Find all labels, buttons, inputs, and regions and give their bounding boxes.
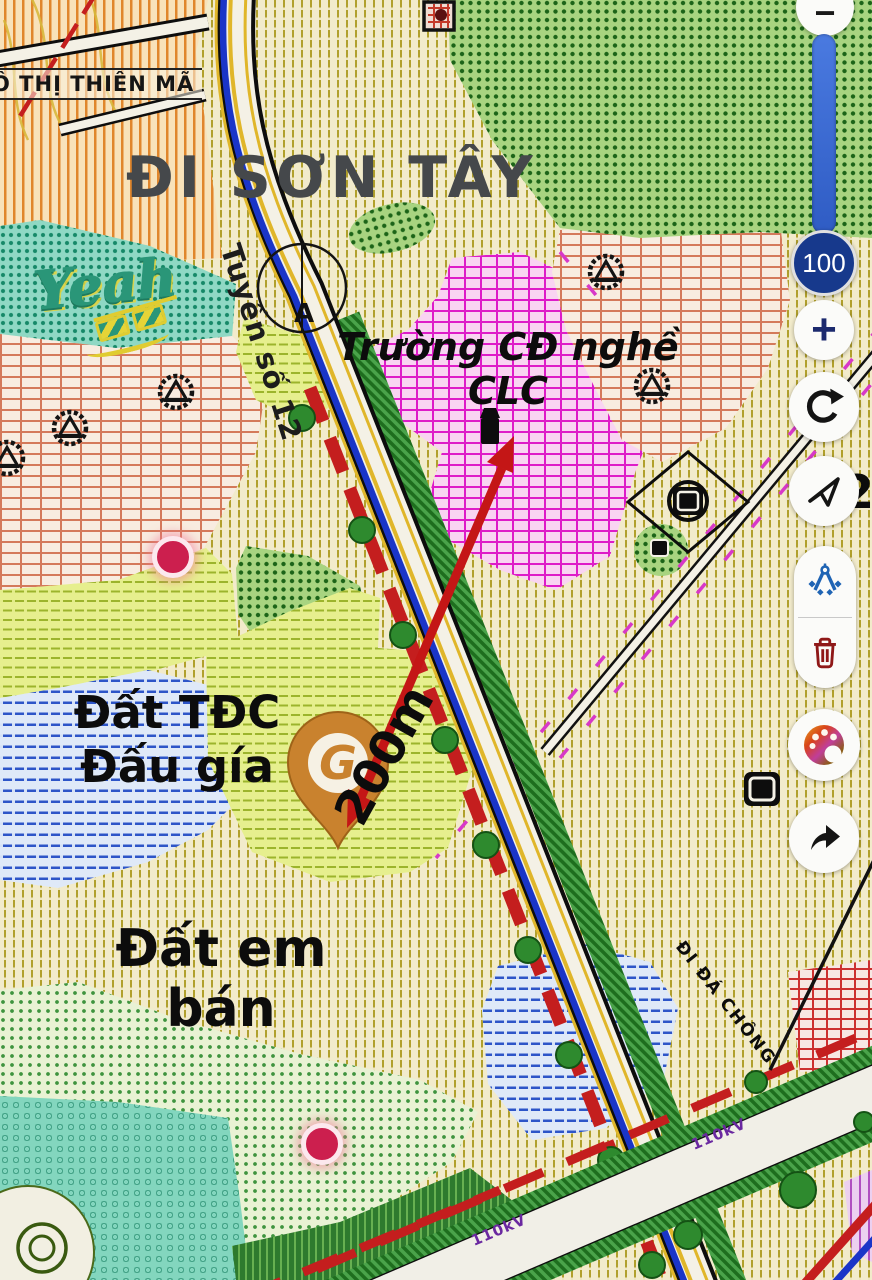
navigate-icon	[804, 471, 844, 511]
poi-marker-1[interactable]	[152, 536, 194, 578]
facility-symbol-2	[744, 772, 780, 806]
delete-button[interactable]	[794, 618, 856, 689]
label-sale-land: Đất em bán	[94, 920, 348, 1040]
opacity-slider-track[interactable]	[812, 34, 836, 234]
share-button[interactable]	[789, 803, 859, 873]
zoom-in-button[interactable]: +	[794, 300, 854, 360]
measure-button[interactable]	[794, 546, 856, 617]
map-canvas[interactable]: A G ĐI SƠN TÂY Trường CĐ nghề CLC Đất	[0, 0, 872, 1280]
label-auction-line2: Đấu gía	[60, 740, 294, 794]
temple-icon	[590, 256, 622, 288]
rotate-button[interactable]	[789, 372, 859, 442]
label-auction-line1: Đất TĐC	[60, 686, 294, 740]
watermark-logo: Yeah	[30, 241, 212, 378]
label-school: Trường CĐ nghề CLC	[322, 326, 694, 413]
temple-icon	[0, 442, 23, 474]
temple-icon	[160, 376, 192, 408]
compass-measure-icon	[805, 561, 845, 601]
trash-icon	[806, 634, 844, 672]
label-direction-sontay: ĐI SƠN TÂY	[126, 146, 538, 212]
legend-chip	[424, 2, 454, 30]
red-line-topleft	[14, 0, 98, 126]
label-auction-land: Đất TĐC Đấu gía	[60, 686, 294, 794]
well-symbol	[0, 1186, 94, 1280]
label-sale-line1: Đất em	[94, 920, 348, 980]
monument-icon	[480, 408, 500, 444]
label-sale-line2: bán	[94, 980, 348, 1040]
tools-pill	[794, 546, 856, 688]
facility-symbol-3	[651, 540, 668, 556]
palette-icon	[802, 723, 846, 767]
label-school-line1: Trường CĐ nghề	[322, 326, 694, 370]
label-school-line2: CLC	[322, 370, 694, 414]
station-letter: A	[294, 299, 314, 329]
share-icon	[804, 818, 844, 858]
opacity-value: 100	[802, 248, 845, 279]
style-button[interactable]	[788, 709, 860, 781]
opacity-value-badge[interactable]: 100	[791, 230, 857, 296]
poi-marker-2[interactable]	[301, 1123, 343, 1165]
plus-icon: +	[811, 305, 837, 355]
rotate-icon	[803, 386, 845, 428]
minus-icon: −	[814, 0, 835, 34]
temple-icon	[54, 412, 86, 444]
navigate-button[interactable]	[789, 456, 859, 526]
label-urban-thienma: Ô THỊ THIÊN MÃ	[0, 68, 202, 100]
